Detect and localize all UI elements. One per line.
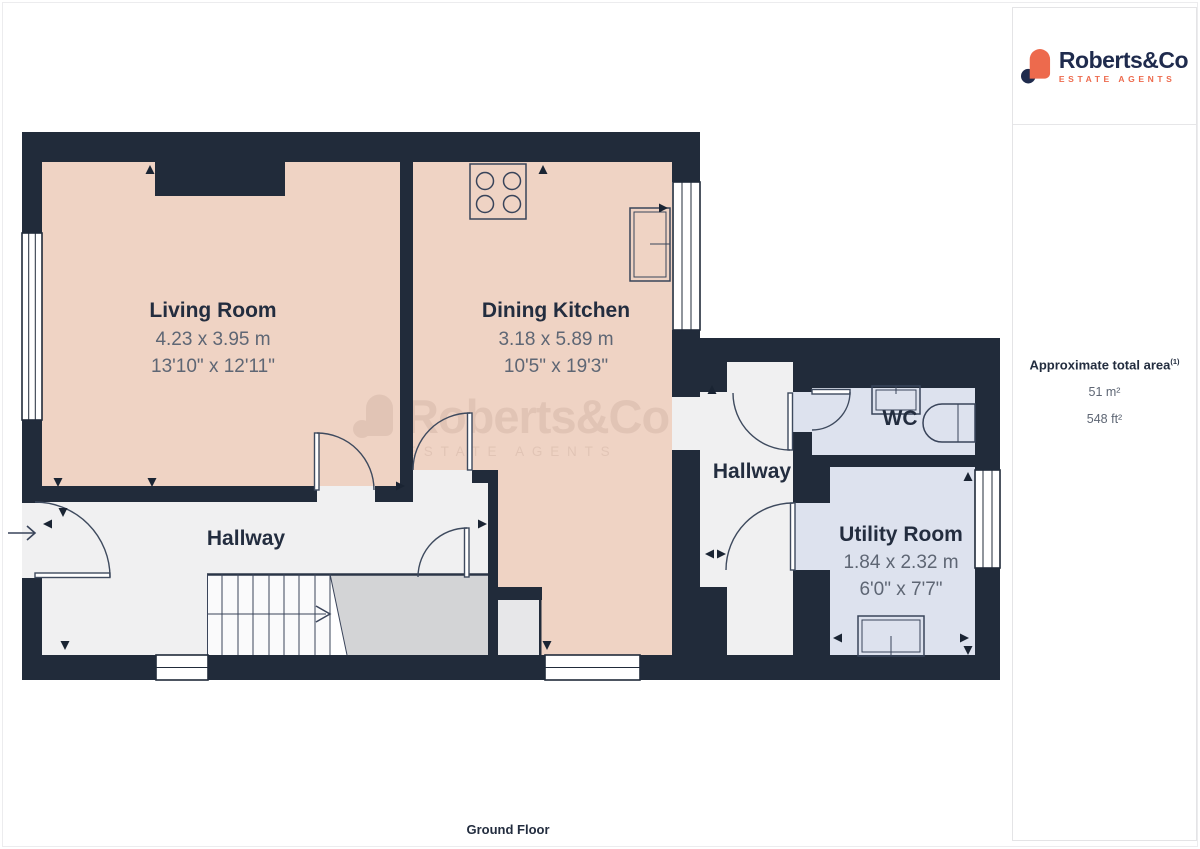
wc-label: WC xyxy=(883,407,918,430)
utility-room-dim-m: 1.84 x 2.32 m xyxy=(843,552,958,573)
living-room-label: Living Room xyxy=(149,299,276,322)
watermark-brand: Roberts&Co xyxy=(405,390,669,443)
window xyxy=(673,182,700,330)
floorplan-page: Roberts&Co ESTATE AGENTS xyxy=(0,0,1200,849)
heart-logo-icon xyxy=(1021,47,1052,85)
footnote-ref: (1) xyxy=(1170,357,1179,366)
utility-room-label: Utility Room xyxy=(839,523,963,546)
window xyxy=(22,233,42,420)
hallway-rear-label: Hallway xyxy=(713,460,792,483)
area-section: Approximate total area(1) 51 m² 548 ft² xyxy=(1013,357,1196,849)
window xyxy=(975,470,1000,568)
brand-logo: Roberts&Co ESTATE AGENTS xyxy=(1013,8,1196,125)
dining-kitchen-dim-ft: 10'5" x 19'3" xyxy=(504,356,608,377)
total-area-label: Approximate total area(1) xyxy=(1013,357,1196,372)
total-area-metric: 51 m² xyxy=(1013,385,1196,399)
watermark-tagline: ESTATE AGENTS xyxy=(407,444,617,459)
info-sidebar: Roberts&Co ESTATE AGENTS Approximate tot… xyxy=(1012,7,1197,841)
dining-kitchen-label: Dining Kitchen xyxy=(482,299,630,322)
floorplan-drawing: Roberts&Co ESTATE AGENTS xyxy=(0,0,1010,849)
window xyxy=(156,655,208,680)
utility-room-dim-ft: 6'0" x 7'7" xyxy=(859,579,942,600)
brand-tagline: ESTATE AGENTS xyxy=(1059,75,1188,84)
living-room-dim-m: 4.23 x 3.95 m xyxy=(155,329,270,350)
hallway-main-label: Hallway xyxy=(207,527,286,550)
living-room-dim-ft: 13'10" x 12'11" xyxy=(151,356,275,377)
floor-title: Ground Floor xyxy=(466,822,549,837)
dining-kitchen-dim-m: 3.18 x 5.89 m xyxy=(498,329,613,350)
brand-name: Roberts&Co xyxy=(1059,49,1188,72)
total-area-imperial: 548 ft² xyxy=(1013,412,1196,426)
window xyxy=(545,655,640,680)
